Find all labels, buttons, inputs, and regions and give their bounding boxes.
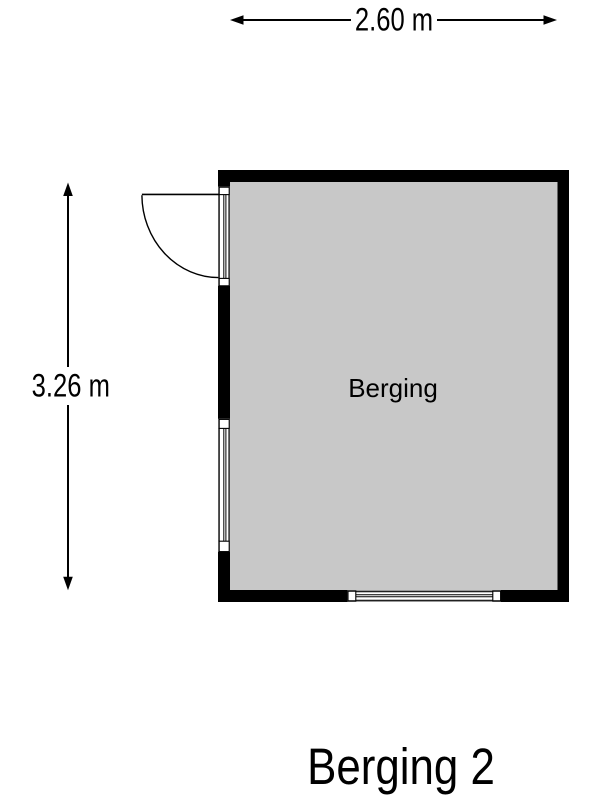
svg-text:Berging 2: Berging 2	[307, 739, 495, 796]
svg-text:2.60 m: 2.60 m	[355, 3, 433, 38]
svg-text:Berging: Berging	[348, 373, 438, 403]
svg-text:3.26 m: 3.26 m	[32, 369, 110, 404]
